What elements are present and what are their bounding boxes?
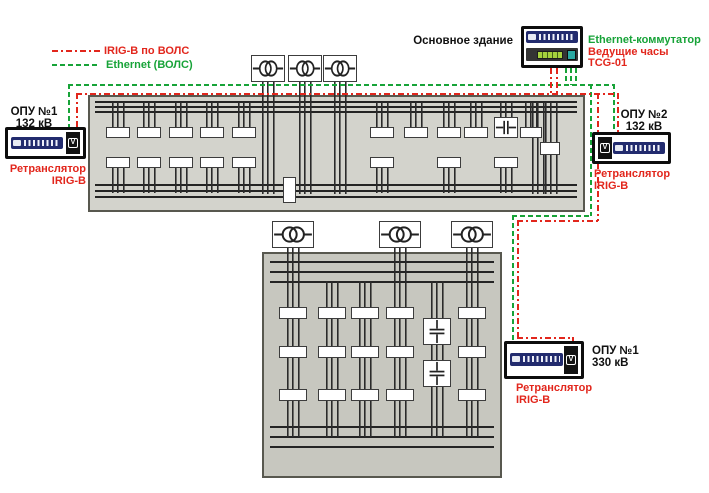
breaker-box <box>458 346 486 358</box>
bay-wires <box>175 168 188 193</box>
ethernet-switch-label: Ethernet-коммутатор <box>588 34 701 46</box>
transformer-icon <box>323 55 357 82</box>
switch-chip <box>13 140 21 146</box>
irig-b-fiber-line <box>550 68 552 94</box>
master-clock-label-line2: TCG-01 <box>588 57 627 69</box>
bay-wires <box>206 102 219 128</box>
busbar <box>270 436 494 438</box>
breaker-box <box>279 346 307 358</box>
opu2-132-name: ОПУ №2 132 кВ <box>613 109 675 133</box>
bay-box <box>232 127 256 138</box>
bay-box <box>200 127 224 138</box>
bay-box <box>437 127 461 138</box>
clock-lcd-display <box>537 51 563 59</box>
bay-box <box>169 157 193 168</box>
transformer-feeder-wires <box>466 248 479 281</box>
ethernet-fiber-line <box>512 215 592 217</box>
substation-timing-diagram: IRIG-B по ВОЛС Ethernet (ВОЛС) Основное … <box>0 0 709 493</box>
repeater-switch <box>11 137 63 149</box>
ethernet-switch-device <box>526 31 578 43</box>
repeater-label-line1: Ретранслятор <box>516 382 606 394</box>
switch-ports <box>626 145 662 151</box>
bay-box <box>370 127 394 138</box>
busbar <box>270 426 494 428</box>
bay-wires <box>443 168 456 193</box>
repeater-switch <box>613 142 665 154</box>
bay-box <box>169 127 193 138</box>
tcg01-master-clock-device <box>526 48 578 61</box>
bay-box <box>370 157 394 168</box>
bay-wires <box>431 281 444 437</box>
bay-wires <box>500 102 513 118</box>
bay-wires <box>206 168 219 193</box>
irig-module: V <box>66 132 80 154</box>
breaker-box <box>458 389 486 401</box>
breaker-box <box>318 346 346 358</box>
irig-b-fiber-line <box>76 93 78 128</box>
breaker-box <box>351 346 379 358</box>
repeater-label-line1: Ретранслятор <box>594 168 684 180</box>
opu2-132-repeater-box: V <box>592 132 671 164</box>
opu1-330-name-line: ОПУ №1 <box>592 345 639 357</box>
transformer-icon <box>272 221 314 248</box>
capacitor-bay <box>494 117 518 138</box>
irig-b-fiber-line <box>517 220 599 222</box>
busbar <box>270 281 494 283</box>
busbar <box>270 271 494 273</box>
bay-box <box>520 127 542 138</box>
irig-b-fiber-line <box>517 337 574 339</box>
breaker-box <box>279 307 307 319</box>
busbar <box>95 196 577 198</box>
main-building-device-box <box>521 26 583 68</box>
bay-wires <box>143 168 156 193</box>
irig-b-fiber-line <box>556 68 558 94</box>
v-emblem-icon: V <box>600 143 611 153</box>
bay-box <box>137 157 161 168</box>
transformer-feeder-wires <box>287 248 300 281</box>
transformer-feeder-wires <box>334 82 347 194</box>
repeater-label-line2: IRIG-B <box>2 175 86 187</box>
bus-coupler-box <box>283 177 296 203</box>
switch-ports <box>539 34 575 40</box>
main-building-label: Основное здание <box>405 35 513 47</box>
bay-wires <box>376 102 389 128</box>
v-emblem-icon: V <box>68 138 79 148</box>
transformer-feeder-wires <box>394 248 407 281</box>
busbar <box>270 446 494 448</box>
irig-module: V <box>598 137 612 159</box>
ethernet-fiber-line <box>68 84 613 86</box>
bay-wires <box>238 168 251 193</box>
switch-chip <box>512 356 520 362</box>
bay-box <box>464 127 488 138</box>
breaker-box <box>318 389 346 401</box>
bay-wires <box>287 281 300 437</box>
ethernet-fiber-line <box>512 215 514 343</box>
bay-box <box>494 157 518 168</box>
transformer-feeder-wires <box>262 82 275 194</box>
breaker-box <box>458 307 486 319</box>
transformer-icon <box>451 221 493 248</box>
bay-box <box>137 127 161 138</box>
bay-wires <box>525 102 538 128</box>
bay-wires <box>500 168 513 193</box>
transformer-icon <box>251 55 285 82</box>
feeder-box <box>540 142 560 155</box>
bay-wires <box>376 168 389 193</box>
opu1-132-name-line: ОПУ №1 <box>4 106 64 118</box>
schematic-layer <box>0 0 709 493</box>
ethernet-fiber-line <box>68 84 70 128</box>
opu1-132-repeater-label: Ретранслятор IRIG-B <box>2 163 86 187</box>
bay-wires <box>394 281 407 437</box>
switch-chip <box>615 145 623 151</box>
ethernet-fiber-line <box>570 68 572 85</box>
bay-box <box>106 127 130 138</box>
repeater-label-line2: IRIG-B <box>594 180 684 192</box>
irig-b-fiber-line <box>76 93 617 95</box>
bay-box <box>106 157 130 168</box>
irig-b-fiber-line <box>517 220 519 338</box>
breaker-box <box>386 389 414 401</box>
bay-box <box>200 157 224 168</box>
v-emblem-icon: V <box>566 355 577 365</box>
bay-wires <box>443 102 456 128</box>
bay-wires <box>326 281 339 437</box>
transformer-icon <box>288 55 322 82</box>
opu1-330-name: ОПУ №1 330 кВ <box>592 345 639 369</box>
bay-wires <box>175 102 188 128</box>
opu1-132-repeater-box: V <box>5 127 86 159</box>
bay-wires <box>470 102 483 128</box>
irig-module: V <box>564 346 578 374</box>
bay-box <box>232 157 256 168</box>
opu1-330-voltage: 330 кВ <box>592 357 639 369</box>
bay-wires <box>112 102 125 128</box>
ethernet-fiber-line <box>575 68 577 85</box>
bay-wires <box>466 281 479 437</box>
bay-wires <box>410 102 423 128</box>
switch-ports <box>24 140 60 146</box>
breaker-box <box>351 389 379 401</box>
breaker-box <box>351 307 379 319</box>
bay-wires <box>238 102 251 128</box>
switch-ports <box>523 356 560 362</box>
bay-wires <box>359 281 372 437</box>
transformer-feeder-wires <box>299 82 312 194</box>
ethernet-fiber-line <box>565 68 567 85</box>
repeater-label-line2: IRIG-B <box>516 394 606 406</box>
capacitor-box <box>423 360 451 387</box>
capacitor-box <box>423 318 451 345</box>
opu2-132-name-line: ОПУ №2 <box>613 109 675 121</box>
bay-wires <box>143 102 156 128</box>
transformer-icon <box>379 221 421 248</box>
breaker-box <box>386 346 414 358</box>
breaker-box <box>318 307 346 319</box>
switch-chip <box>528 34 536 40</box>
opu1-330-repeater-box: V <box>504 341 584 379</box>
clock-button <box>567 50 576 60</box>
repeater-switch <box>510 353 563 366</box>
opu1-330-repeater-label: Ретранслятор IRIG-B <box>516 382 606 406</box>
bay-box <box>404 127 428 138</box>
breaker-box <box>386 307 414 319</box>
breaker-box <box>279 389 307 401</box>
repeater-label-line1: Ретранслятор <box>2 163 86 175</box>
bay-wires <box>112 168 125 193</box>
busbar <box>270 261 494 263</box>
opu2-132-repeater-label: Ретранслятор IRIG-B <box>594 168 684 192</box>
bay-box <box>437 157 461 168</box>
